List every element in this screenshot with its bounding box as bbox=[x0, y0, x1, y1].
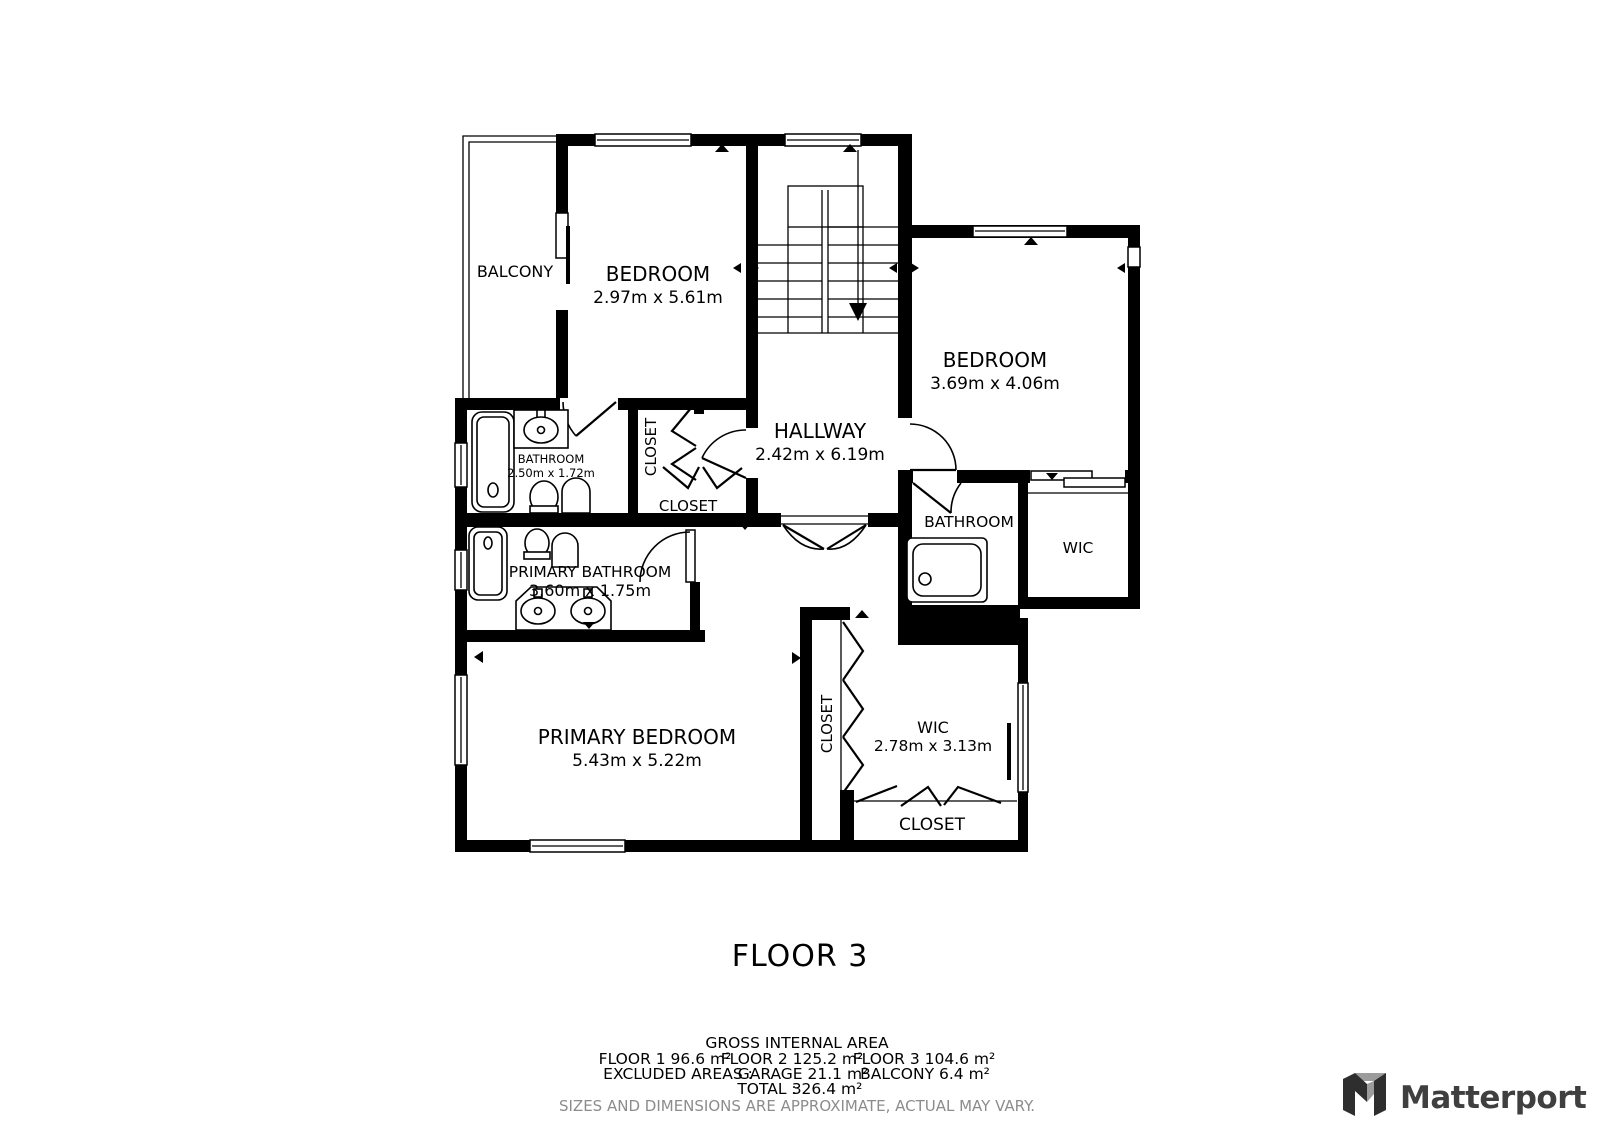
room-dims-primary-bedroom: 5.43m x 5.22m bbox=[572, 751, 702, 771]
room-dims-primary-bathroom: 3.60m x 1.75m bbox=[529, 581, 651, 600]
floorplan-canvas: BALCONY BEDROOM 2.97m x 5.61m BEDROOM 3.… bbox=[0, 0, 1600, 1131]
room-label-balcony: BALCONY bbox=[477, 262, 554, 281]
disclaimer-text: SIZES AND DIMENSIONS ARE APPROXIMATE, AC… bbox=[559, 1097, 1035, 1115]
room-label-closet-hall: CLOSET bbox=[659, 497, 718, 515]
room-label-closet-hall-tall: CLOSET bbox=[642, 417, 660, 476]
floorplan-page: BALCONY BEDROOM 2.97m x 5.61m BEDROOM 3.… bbox=[0, 0, 1600, 1131]
room-label-bedroom-right: BEDROOM bbox=[943, 348, 1047, 372]
matterport-logo-text: Matterport bbox=[1400, 1080, 1587, 1116]
room-label-bathroom-top: BATHROOM bbox=[518, 452, 585, 466]
room-label-wic-bottom: WIC bbox=[917, 718, 949, 737]
matterport-logo-icon bbox=[1343, 1073, 1386, 1116]
balcony-area: BALCONY 6.4 m² bbox=[860, 1065, 990, 1083]
room-label-bathroom-right: BATHROOM bbox=[924, 513, 1014, 531]
room-label-wic-right: WIC bbox=[1063, 539, 1094, 557]
room-dims-bathroom-top: 2.50m x 1.72m bbox=[507, 466, 595, 480]
matterport-logo: Matterport bbox=[1343, 1073, 1587, 1116]
staircase bbox=[758, 150, 898, 333]
total-label: TOTAL : bbox=[736, 1080, 796, 1098]
room-label-primary-bathroom: PRIMARY BATHROOM bbox=[509, 563, 672, 581]
stairs-down-arrow bbox=[849, 303, 867, 321]
shower-primary bbox=[552, 533, 578, 567]
summary-text: FLOOR 3 GROSS INTERNAL AREA FLOOR 1 96.6… bbox=[559, 939, 1035, 1115]
excluded-areas-label: EXCLUDED AREAS : bbox=[603, 1065, 753, 1083]
room-label-closet-bottom: CLOSET bbox=[899, 815, 966, 835]
room-dims-bedroom-top: 2.97m x 5.61m bbox=[593, 288, 723, 308]
room-label-bedroom-top: BEDROOM bbox=[606, 262, 710, 286]
room-label-hallway: HALLWAY bbox=[774, 419, 867, 443]
floor-title: FLOOR 3 bbox=[732, 939, 869, 974]
total-value: 326.4 m² bbox=[792, 1080, 863, 1098]
room-dims-hallway: 2.42m x 6.19m bbox=[755, 445, 885, 465]
room-label-primary-bedroom: PRIMARY BEDROOM bbox=[538, 725, 736, 749]
shower-top bbox=[562, 478, 590, 513]
room-label-closet-strip: CLOSET bbox=[818, 694, 836, 753]
room-dims-bedroom-right: 3.69m x 4.06m bbox=[930, 374, 1060, 394]
room-dims-wic-bottom: 2.78m x 3.13m bbox=[874, 737, 992, 755]
